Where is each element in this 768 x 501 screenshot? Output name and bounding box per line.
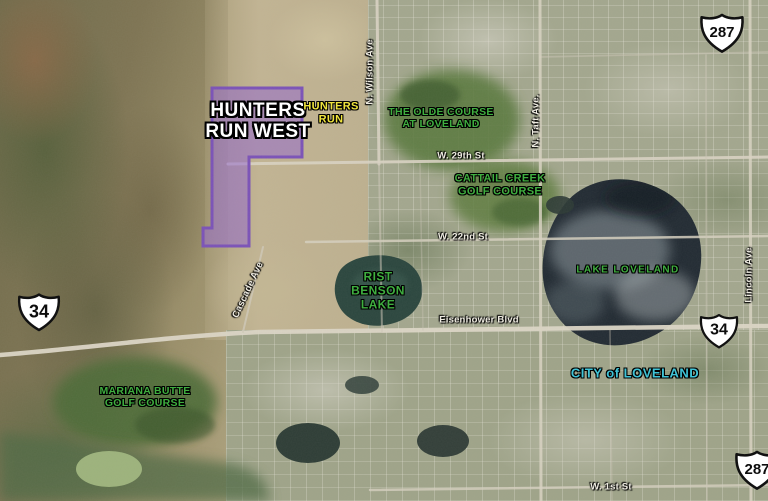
mariana-butte-label: MARIANA BUTTE GOLF COURSE <box>99 385 190 409</box>
route-number: 34 <box>710 322 728 340</box>
route-number: 287 <box>744 461 768 478</box>
street-label-w-1st: W. 1st St <box>590 482 631 493</box>
street-label-w-22nd: W. 22nd St <box>438 232 488 243</box>
satellite-grain <box>0 0 768 501</box>
street-label-taft: N. Taft Ave. <box>531 94 542 147</box>
cattail-creek-label: CATTAIL CREEK GOLF COURSE <box>455 172 546 197</box>
route-number: 287 <box>709 24 734 41</box>
hunters-run-label: HUNTERS RUN <box>303 100 358 125</box>
rist-benson-lake-label: RIST BENSON LAKE <box>351 270 405 311</box>
lake-loveland-label: LAKE LOVELAND <box>576 264 679 276</box>
us-34-shield-left: 34 <box>17 292 62 333</box>
route-number: 34 <box>29 301 49 322</box>
hunters-run-west-line2: RUN WEST <box>205 121 310 142</box>
hunters-run-west-label: HUNTERS RUN WEST <box>205 100 310 142</box>
aerial-map-canvas: HUNTERS RUN WEST HUNTERS RUN THE OLDE CO… <box>0 0 768 501</box>
street-label-eisenhower: Eisenhower Blvd <box>439 315 519 326</box>
street-label-wilson: N. Wilson Ave <box>365 39 376 104</box>
map-feature-overlay <box>0 0 768 501</box>
street-label-lincoln: Lincoln Ave <box>744 247 755 302</box>
us-287-shield-top: 287 <box>699 12 746 54</box>
us-287-shield-bottom: 287 <box>734 449 768 491</box>
city-of-loveland-label: CITY of LOVELAND <box>571 367 699 382</box>
hunters-run-west-line1: HUNTERS <box>210 100 305 121</box>
us-34-shield-right: 34 <box>699 313 740 350</box>
street-label-w-29th: W. 29th St <box>437 151 484 162</box>
olde-course-label: THE OLDE COURSE AT LOVELAND <box>388 106 493 130</box>
